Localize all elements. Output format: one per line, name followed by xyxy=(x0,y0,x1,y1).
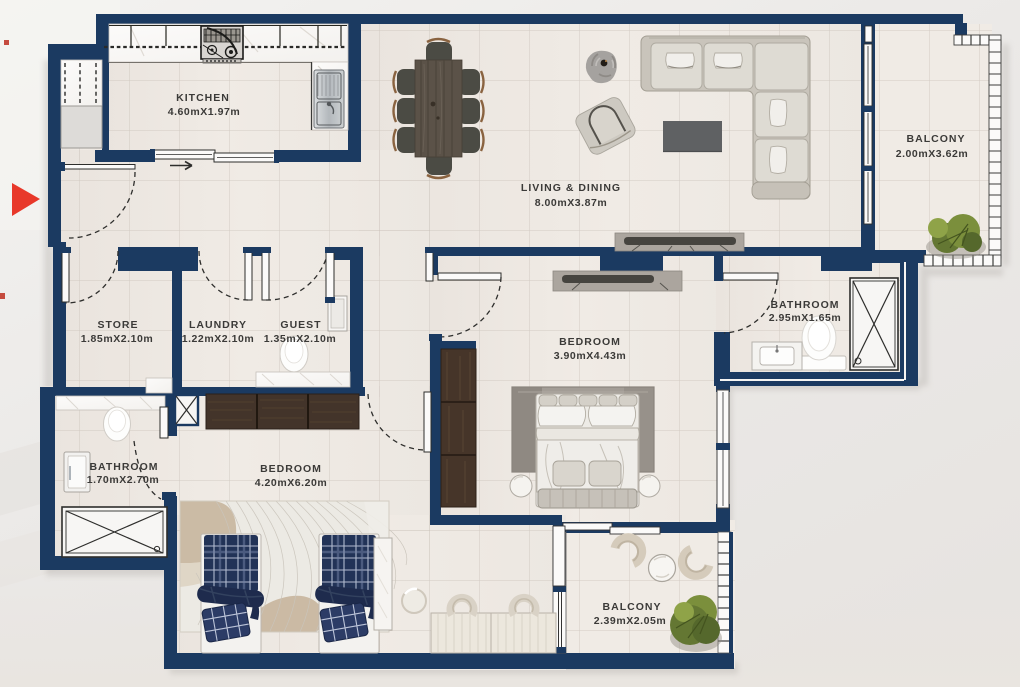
svg-text:2.95mX1.65m: 2.95mX1.65m xyxy=(769,312,842,324)
svg-text:BEDROOM: BEDROOM xyxy=(260,463,322,475)
svg-text:1.22mX2.10m: 1.22mX2.10m xyxy=(182,333,255,345)
svg-text:GUEST: GUEST xyxy=(280,319,321,331)
svg-text:LIVING & DINING: LIVING & DINING xyxy=(521,182,621,194)
svg-text:KITCHEN: KITCHEN xyxy=(176,92,230,104)
svg-text:3.90mX4.43m: 3.90mX4.43m xyxy=(554,350,627,362)
svg-text:1.35mX2.10m: 1.35mX2.10m xyxy=(264,333,337,345)
svg-text:1.70mX2.70m: 1.70mX2.70m xyxy=(87,474,160,486)
svg-text:BEDROOM: BEDROOM xyxy=(559,336,621,348)
svg-text:2.39mX2.05m: 2.39mX2.05m xyxy=(594,615,667,627)
svg-text:2.00mX3.62m: 2.00mX3.62m xyxy=(896,148,969,160)
svg-text:8.00mX3.87m: 8.00mX3.87m xyxy=(535,197,608,209)
svg-text:4.60mX1.97m: 4.60mX1.97m xyxy=(168,106,241,118)
svg-text:BATHROOM: BATHROOM xyxy=(770,299,839,311)
svg-text:BALCONY: BALCONY xyxy=(603,601,662,613)
svg-text:BALCONY: BALCONY xyxy=(907,133,966,145)
svg-text:LAUNDRY: LAUNDRY xyxy=(189,319,247,331)
svg-text:1.85mX2.10m: 1.85mX2.10m xyxy=(81,333,154,345)
svg-text:4.20mX6.20m: 4.20mX6.20m xyxy=(255,477,328,489)
svg-text:BATHROOM: BATHROOM xyxy=(89,461,158,473)
svg-text:STORE: STORE xyxy=(98,319,139,331)
